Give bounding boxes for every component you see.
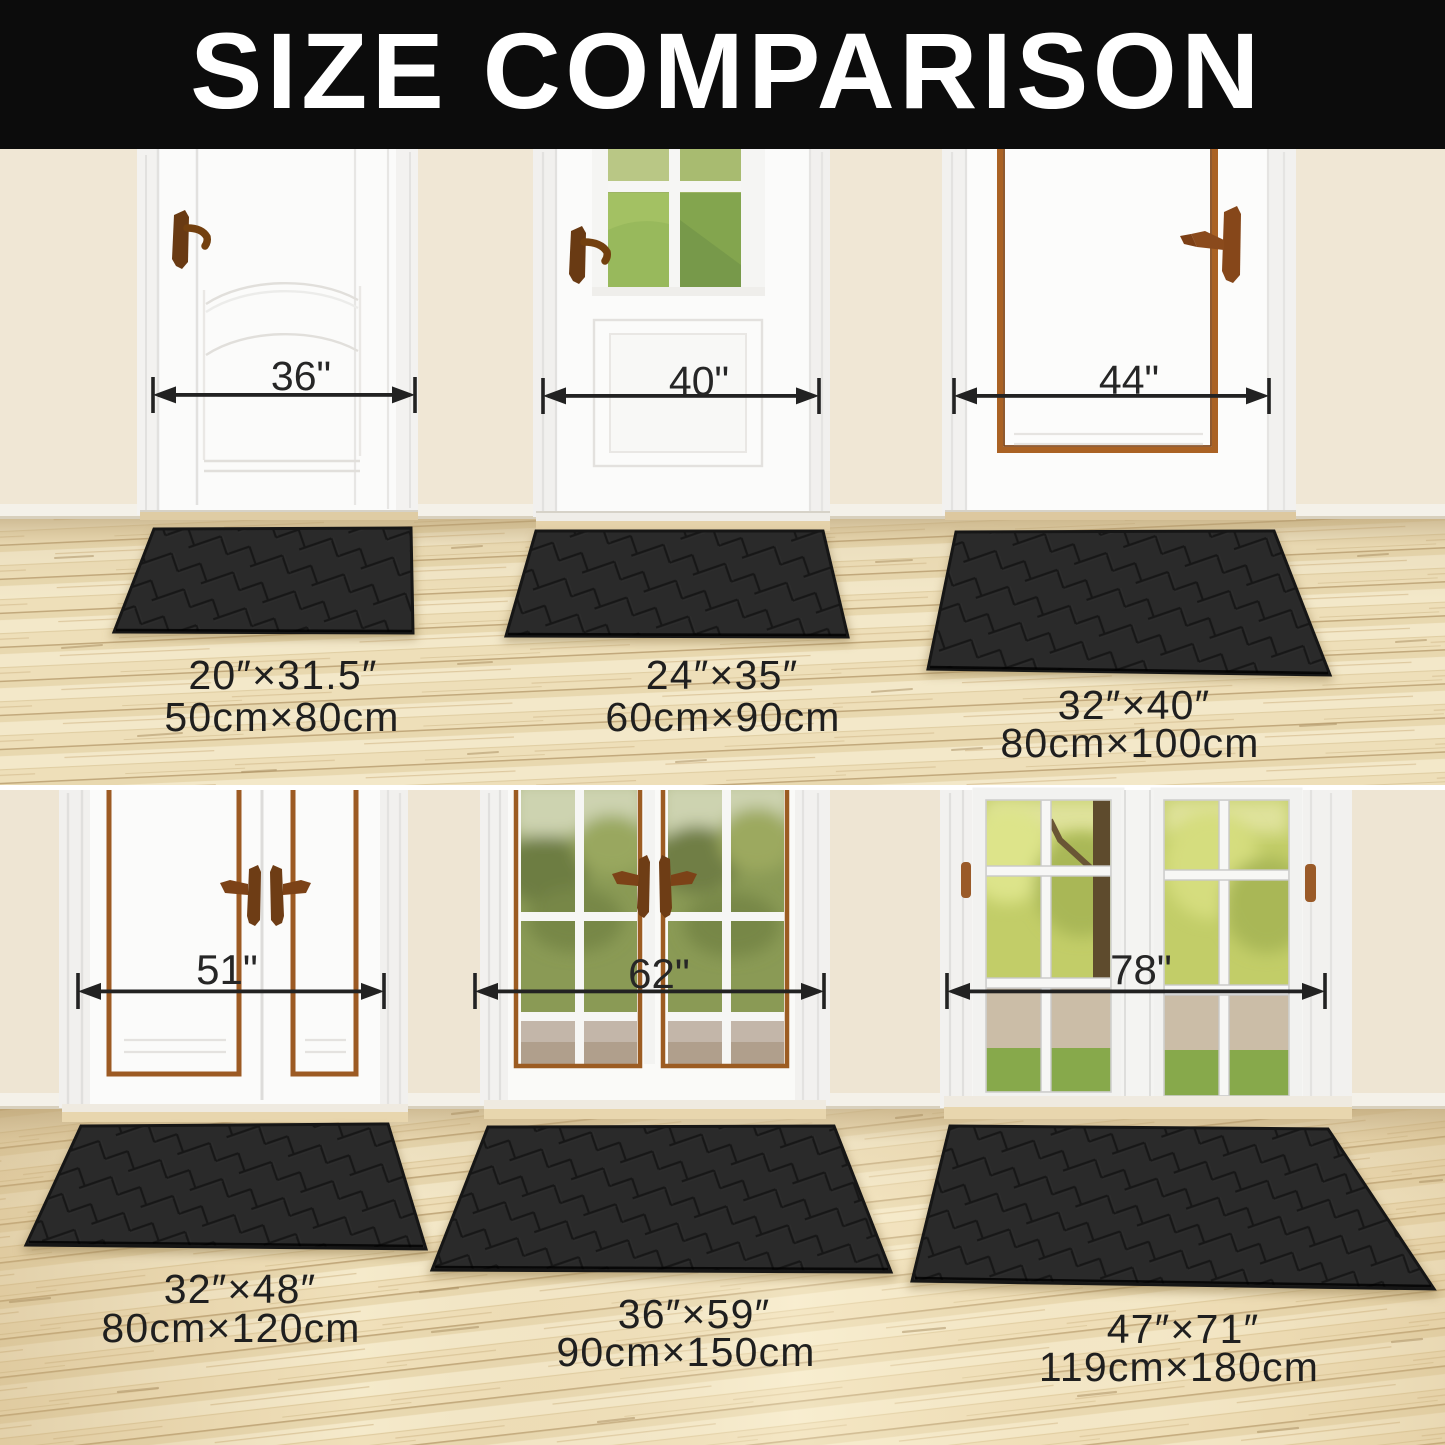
svg-text:50cm×80cm: 50cm×80cm — [164, 694, 399, 740]
svg-text:60cm×90cm: 60cm×90cm — [605, 694, 840, 740]
svg-text:SIZE COMPARISON: SIZE COMPARISON — [190, 10, 1264, 131]
svg-text:80cm×100cm: 80cm×100cm — [1000, 720, 1259, 766]
svg-text:78": 78" — [1110, 946, 1172, 993]
svg-text:40": 40" — [669, 358, 729, 404]
svg-text:51": 51" — [196, 946, 258, 993]
svg-text:62": 62" — [628, 950, 690, 997]
svg-text:44": 44" — [1099, 357, 1159, 403]
svg-text:90cm×150cm: 90cm×150cm — [556, 1329, 815, 1375]
svg-text:36": 36" — [271, 353, 331, 399]
svg-text:24″×35″: 24″×35″ — [646, 652, 799, 698]
svg-text:80cm×120cm: 80cm×120cm — [101, 1305, 360, 1351]
svg-text:20″×31.5″: 20″×31.5″ — [188, 652, 377, 698]
svg-text:119cm×180cm: 119cm×180cm — [1039, 1344, 1319, 1390]
